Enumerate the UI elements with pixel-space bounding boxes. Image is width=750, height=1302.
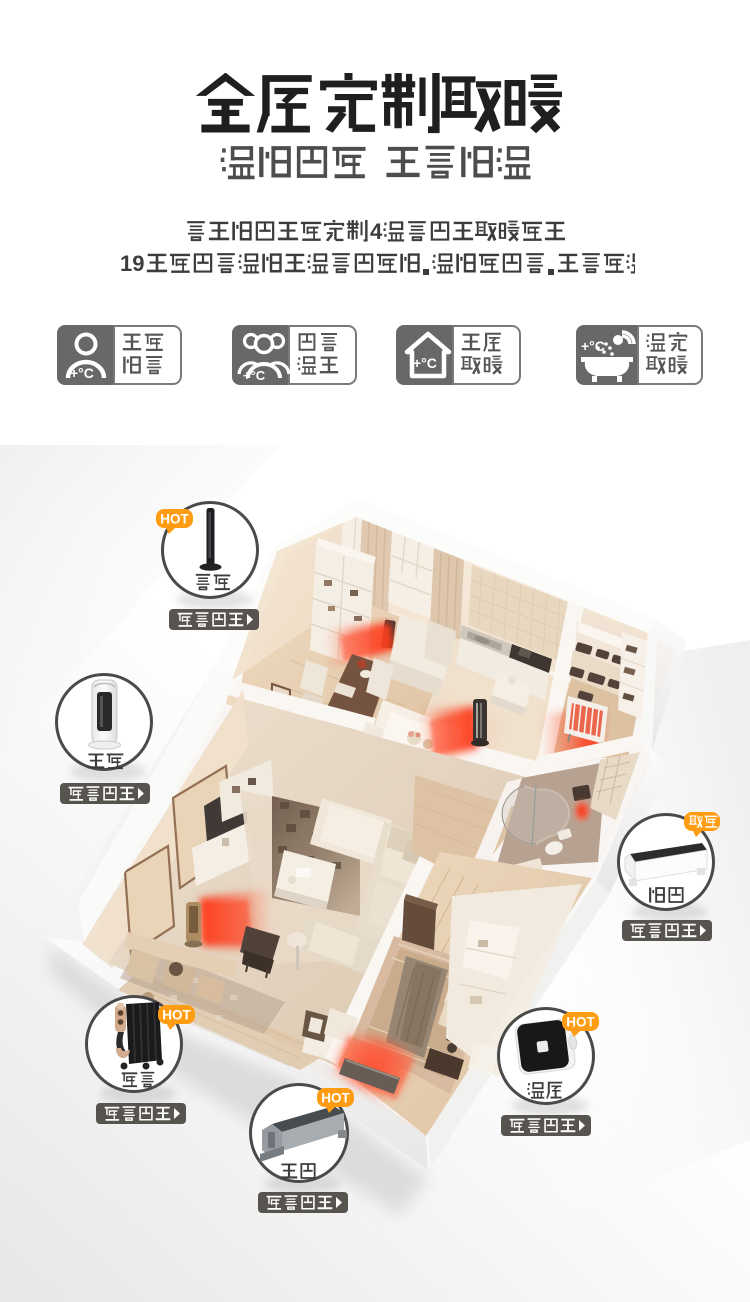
svg-text:HOT: HOT	[566, 1015, 595, 1030]
svg-text:HOT: HOT	[321, 1091, 350, 1106]
svg-text:HOT: HOT	[162, 1008, 191, 1023]
svg-text:HOT: HOT	[160, 512, 189, 527]
